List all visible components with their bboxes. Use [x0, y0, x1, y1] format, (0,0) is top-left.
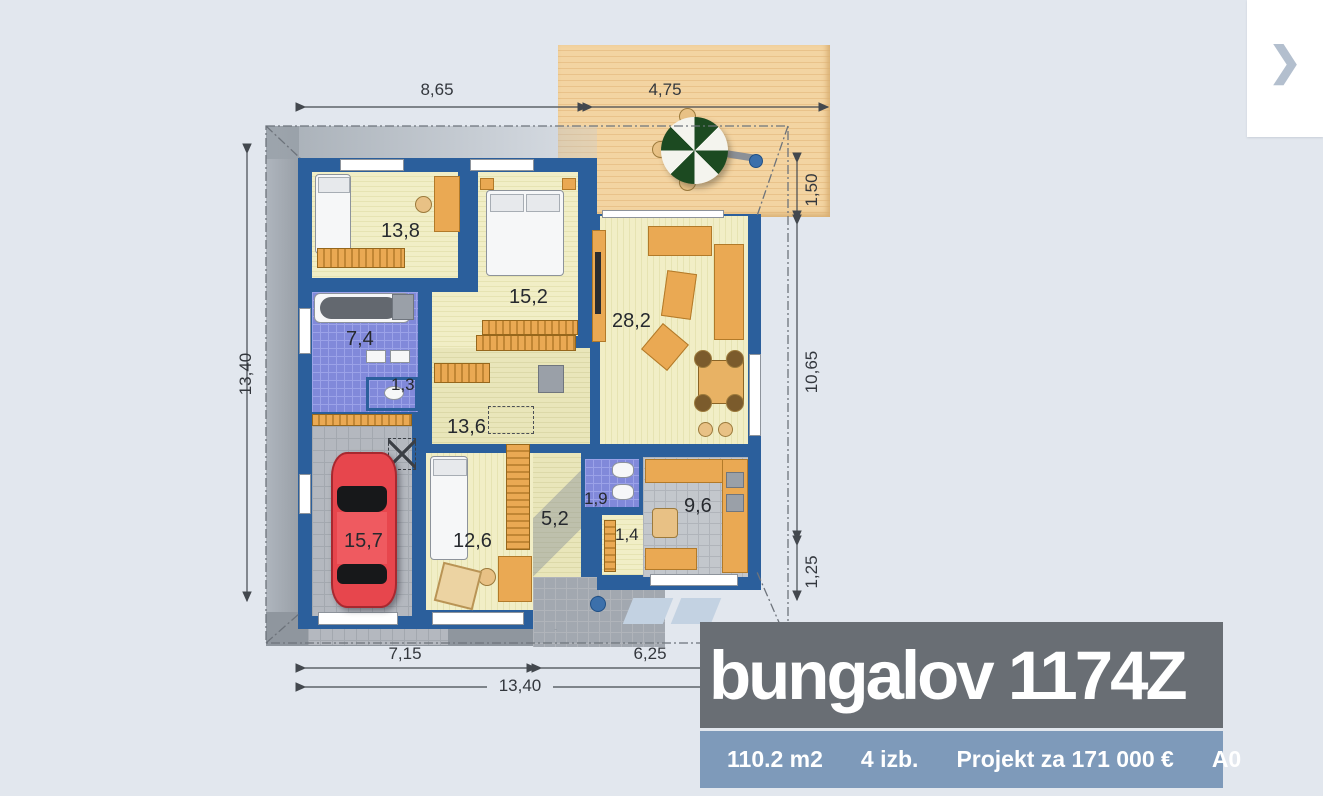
- next-image-button[interactable]: ❯: [1247, 0, 1323, 137]
- dim-right-2: 10,65: [802, 342, 822, 402]
- room-label-bedroom-2: 15,2: [509, 286, 548, 309]
- room-label-garage: 15,7: [344, 530, 383, 553]
- dim-right-3: 1,25: [802, 542, 822, 602]
- chevron-right-icon[interactable]: ❯: [1268, 39, 1302, 85]
- room-label-wc: 1,3: [391, 375, 415, 395]
- room-label-hall: 13,6: [447, 416, 486, 439]
- room-label-kitchen: 9,6: [684, 495, 712, 518]
- stat-price: Projekt za 171 000 €: [956, 746, 1173, 773]
- room-label-living: 28,2: [612, 310, 651, 333]
- project-title-card: bungalov 1174Z: [700, 622, 1223, 728]
- project-stats-bar: 110.2 m2 4 izb. Projekt za 171 000 € A0: [700, 731, 1223, 788]
- stat-rooms: 4 izb.: [861, 746, 919, 773]
- dim-bottom-3: 13,40: [487, 676, 553, 696]
- dim-bottom-1: 7,15: [375, 644, 435, 664]
- room-label-corridor: 5,2: [541, 508, 569, 531]
- project-title: bungalov 1174Z: [700, 636, 1185, 715]
- room-label-bathroom: 7,4: [346, 328, 374, 351]
- page: 8,65 4,75 13,40 1,50 10,65 1,25 7,15 6,2…: [0, 0, 1323, 796]
- stat-area: 110.2 m2: [727, 746, 823, 773]
- dim-bottom-2: 6,25: [620, 644, 680, 664]
- stat-code: A0: [1212, 746, 1241, 773]
- room-label-wc-2: 1,9: [584, 489, 608, 509]
- dim-top-1: 8,65: [407, 80, 467, 100]
- dim-right-1: 1,50: [802, 160, 822, 220]
- dim-top-2: 4,75: [635, 80, 695, 100]
- room-label-bedroom-1: 13,8: [381, 220, 420, 243]
- room-label-pantry: 1,4: [615, 525, 639, 545]
- dim-left-1: 13,40: [236, 344, 256, 404]
- room-label-bedroom-3: 12,6: [453, 530, 492, 553]
